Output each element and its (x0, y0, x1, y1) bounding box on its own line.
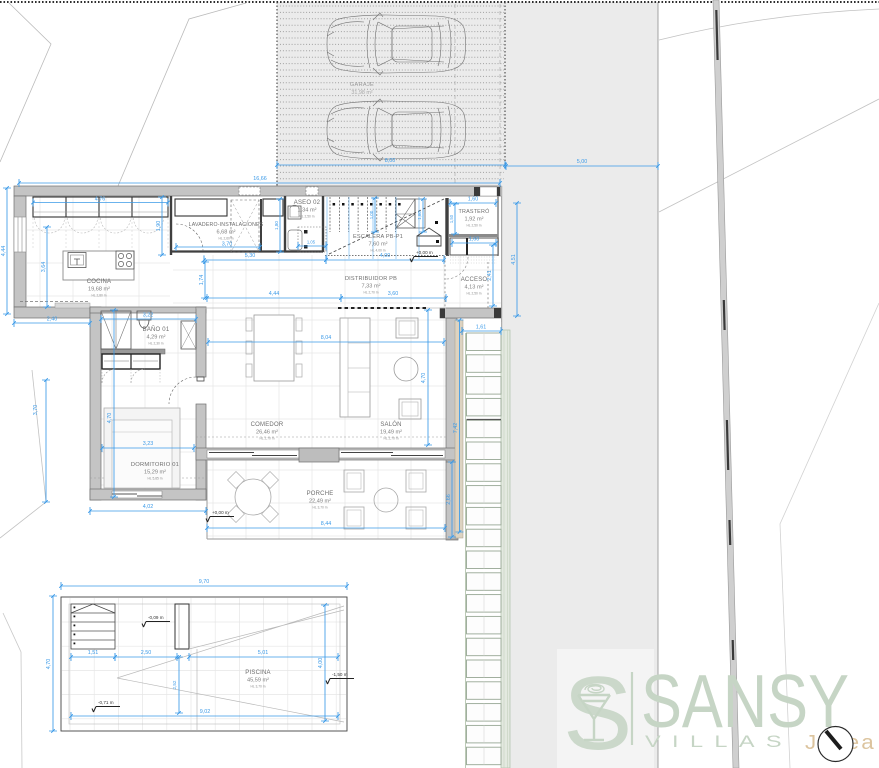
svg-text:-1,50 m: -1,50 m (332, 672, 348, 677)
svg-text:HL 2,30 m: HL 2,30 m (148, 342, 163, 346)
svg-text:HL 2,70 m: HL 2,70 m (363, 291, 378, 295)
svg-text:1,80: 1,80 (274, 221, 279, 230)
svg-text:3,60: 3,60 (388, 291, 399, 297)
svg-text:5,30: 5,30 (245, 253, 256, 259)
svg-text:+0,00 m: +0,00 m (212, 510, 229, 515)
svg-text:HL 3,70 m: HL 3,70 m (312, 506, 327, 510)
svg-text:BAÑO 01: BAÑO 01 (143, 326, 170, 333)
svg-text:7,42: 7,42 (453, 423, 459, 434)
svg-text:7,33 m²: 7,33 m² (362, 284, 381, 290)
svg-text:HL 3,70 m: HL 3,70 m (250, 685, 265, 689)
svg-text:1,00: 1,00 (369, 210, 374, 219)
svg-text:-0,09 m: -0,09 m (148, 615, 164, 620)
svg-text:5,01: 5,01 (258, 650, 269, 656)
svg-text:SALÓN: SALÓN (380, 421, 401, 428)
svg-text:9,70: 9,70 (199, 579, 210, 585)
svg-text:31,98 m²: 31,98 m² (351, 90, 372, 96)
svg-text:19,68 m²: 19,68 m² (88, 287, 110, 293)
svg-text:1,74: 1,74 (199, 275, 205, 286)
svg-text:2,40: 2,40 (47, 317, 58, 323)
svg-text:-0,71 m: -0,71 m (98, 700, 114, 705)
svg-text:4,13 m²: 4,13 m² (465, 285, 484, 291)
svg-text:ACCESO: ACCESO (461, 277, 488, 283)
svg-text:HL 2,80 m: HL 2,80 m (91, 294, 106, 298)
svg-text:5,00: 5,00 (577, 159, 588, 165)
svg-text:16,66: 16,66 (253, 176, 267, 182)
svg-text:4,44: 4,44 (269, 291, 280, 297)
svg-text:1,51: 1,51 (88, 650, 99, 656)
svg-text:1,90: 1,90 (156, 221, 162, 232)
svg-text:ESCALERA PB-P1: ESCALERA PB-P1 (353, 234, 403, 240)
svg-text:LAVADERO-INSTALACIONES: LAVADERO-INSTALACIONES (189, 222, 264, 228)
svg-text:HL 4,00 m: HL 4,00 m (370, 249, 385, 253)
svg-text:19,49 m²: 19,49 m² (380, 430, 402, 436)
svg-text:HL 2,70 m: HL 2,70 m (259, 437, 274, 441)
svg-text:1,60: 1,60 (417, 211, 422, 220)
svg-text:8,04: 8,04 (321, 335, 332, 341)
svg-text:4,51: 4,51 (511, 254, 517, 265)
svg-text:3,23: 3,23 (143, 441, 154, 447)
svg-text:1,50: 1,50 (449, 214, 454, 223)
svg-text:4,70: 4,70 (107, 413, 113, 424)
svg-text:2,41: 2,41 (487, 270, 493, 281)
svg-text:4,29 m²: 4,29 m² (147, 335, 166, 341)
svg-text:HL 2,50 m: HL 2,50 m (466, 292, 481, 296)
svg-text:COCINA: COCINA (87, 279, 112, 285)
svg-text:PISCINA: PISCINA (245, 670, 270, 676)
svg-text:+0,00 m: +0,00 m (416, 250, 433, 255)
svg-text:1,05: 1,05 (307, 240, 316, 245)
svg-text:45,59 m²: 45,59 m² (247, 678, 269, 684)
svg-text:9,02: 9,02 (200, 709, 211, 715)
svg-text:2,66: 2,66 (446, 494, 452, 505)
svg-text:2,50: 2,50 (141, 650, 152, 656)
svg-text:6,68 m²: 6,68 m² (217, 230, 236, 236)
svg-text:SANSY: SANSY (641, 659, 849, 743)
svg-text:HL 2,60 m: HL 2,60 m (218, 237, 233, 241)
svg-text:1,60: 1,60 (469, 237, 480, 243)
svg-text:4,76: 4,76 (95, 197, 106, 203)
svg-text:15,29 m²: 15,29 m² (144, 470, 166, 476)
svg-text:4,70: 4,70 (421, 373, 427, 384)
svg-text:HL 2,50 m: HL 2,50 m (299, 215, 314, 219)
svg-text:1,61: 1,61 (476, 325, 487, 331)
svg-text:4,70: 4,70 (46, 659, 52, 670)
svg-text:4,00: 4,00 (380, 253, 391, 259)
svg-text:HL 2,50 m: HL 2,50 m (466, 224, 481, 228)
svg-text:26,46 m²: 26,46 m² (256, 430, 278, 436)
svg-text:8,00: 8,00 (385, 158, 396, 164)
svg-text:7,60 m²: 7,60 m² (369, 242, 388, 248)
svg-text:GARAJE: GARAJE (350, 82, 374, 88)
svg-text:VILLAS: VILLAS (645, 733, 793, 751)
svg-text:4,02: 4,02 (143, 504, 154, 510)
svg-text:2,52: 2,52 (172, 680, 177, 689)
svg-text:1,92 m²: 1,92 m² (465, 217, 484, 223)
svg-text:4,00: 4,00 (318, 658, 324, 669)
svg-text:ASEO 02: ASEO 02 (294, 200, 321, 206)
svg-text:3,22: 3,22 (143, 313, 154, 319)
svg-text:8,44: 8,44 (321, 521, 332, 527)
svg-text:22,49 m²: 22,49 m² (309, 499, 331, 505)
svg-text:DORMITORIO 01: DORMITORIO 01 (131, 462, 179, 468)
svg-text:3,70: 3,70 (33, 405, 39, 416)
svg-text:3,70: 3,70 (222, 242, 233, 248)
svg-text:HL 2,70 m: HL 2,70 m (383, 437, 398, 441)
svg-text:HL 5,85 m: HL 5,85 m (147, 477, 162, 481)
svg-text:COMEDOR: COMEDOR (251, 422, 284, 428)
svg-text:1,34 m²: 1,34 m² (298, 208, 317, 214)
svg-text:3,64: 3,64 (41, 262, 47, 273)
svg-text:DISTRIBUIDOR PB: DISTRIBUIDOR PB (345, 276, 397, 282)
svg-text:TRASTERÓ: TRASTERÓ (459, 208, 490, 215)
svg-text:4,44: 4,44 (1, 246, 7, 257)
svg-text:PORCHE: PORCHE (307, 491, 334, 497)
svg-text:1,60: 1,60 (468, 197, 479, 203)
